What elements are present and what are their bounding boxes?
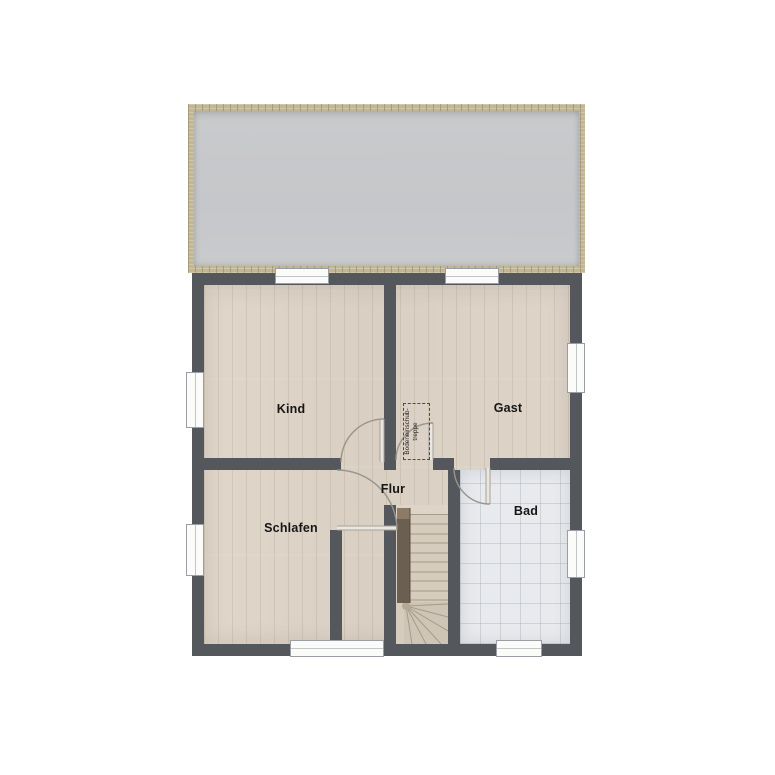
staircase bbox=[396, 505, 448, 644]
wall-outer-left bbox=[192, 273, 204, 656]
window-right-gast bbox=[567, 343, 585, 393]
room-label-flur: Flur bbox=[381, 482, 405, 496]
room-label-kind: Kind bbox=[277, 402, 306, 416]
wall-kind-gast bbox=[384, 285, 396, 470]
window-left-schlafen bbox=[186, 524, 204, 576]
room-label-schlafen: Schlafen bbox=[264, 521, 318, 535]
floor-plan-canvas: Bodeneinschub- treppe bbox=[0, 0, 775, 775]
wall-schlafen-flur bbox=[330, 530, 342, 644]
room-label-bad: Bad bbox=[514, 504, 538, 518]
window-right-bad bbox=[567, 530, 585, 578]
attic-hatch-label-line1: Bodeneinschub- bbox=[404, 404, 412, 459]
roof-surface bbox=[194, 111, 579, 266]
wall-gast-bad bbox=[490, 458, 582, 470]
attic-hatch-label-line2: treppe bbox=[412, 404, 420, 459]
window-bottom-schlafen bbox=[290, 640, 384, 657]
wall-stair-west bbox=[384, 505, 396, 644]
bathroom-tile-floor bbox=[460, 470, 570, 644]
wall-kind-schlafen bbox=[204, 458, 341, 470]
window-bottom-bad bbox=[496, 640, 542, 657]
window-top-gast bbox=[445, 268, 499, 284]
attic-hatch-label: Bodeneinschub- treppe bbox=[404, 404, 430, 459]
room-label-gast: Gast bbox=[494, 401, 523, 415]
wall-stair-east bbox=[448, 470, 460, 644]
wall-flur-segment bbox=[433, 458, 454, 470]
staircase-icon bbox=[396, 505, 448, 644]
attic-hatch: Bodeneinschub- treppe bbox=[403, 403, 430, 460]
window-left-kind bbox=[186, 372, 204, 428]
wall-outer-top bbox=[192, 273, 582, 285]
window-top-kind bbox=[275, 268, 329, 284]
